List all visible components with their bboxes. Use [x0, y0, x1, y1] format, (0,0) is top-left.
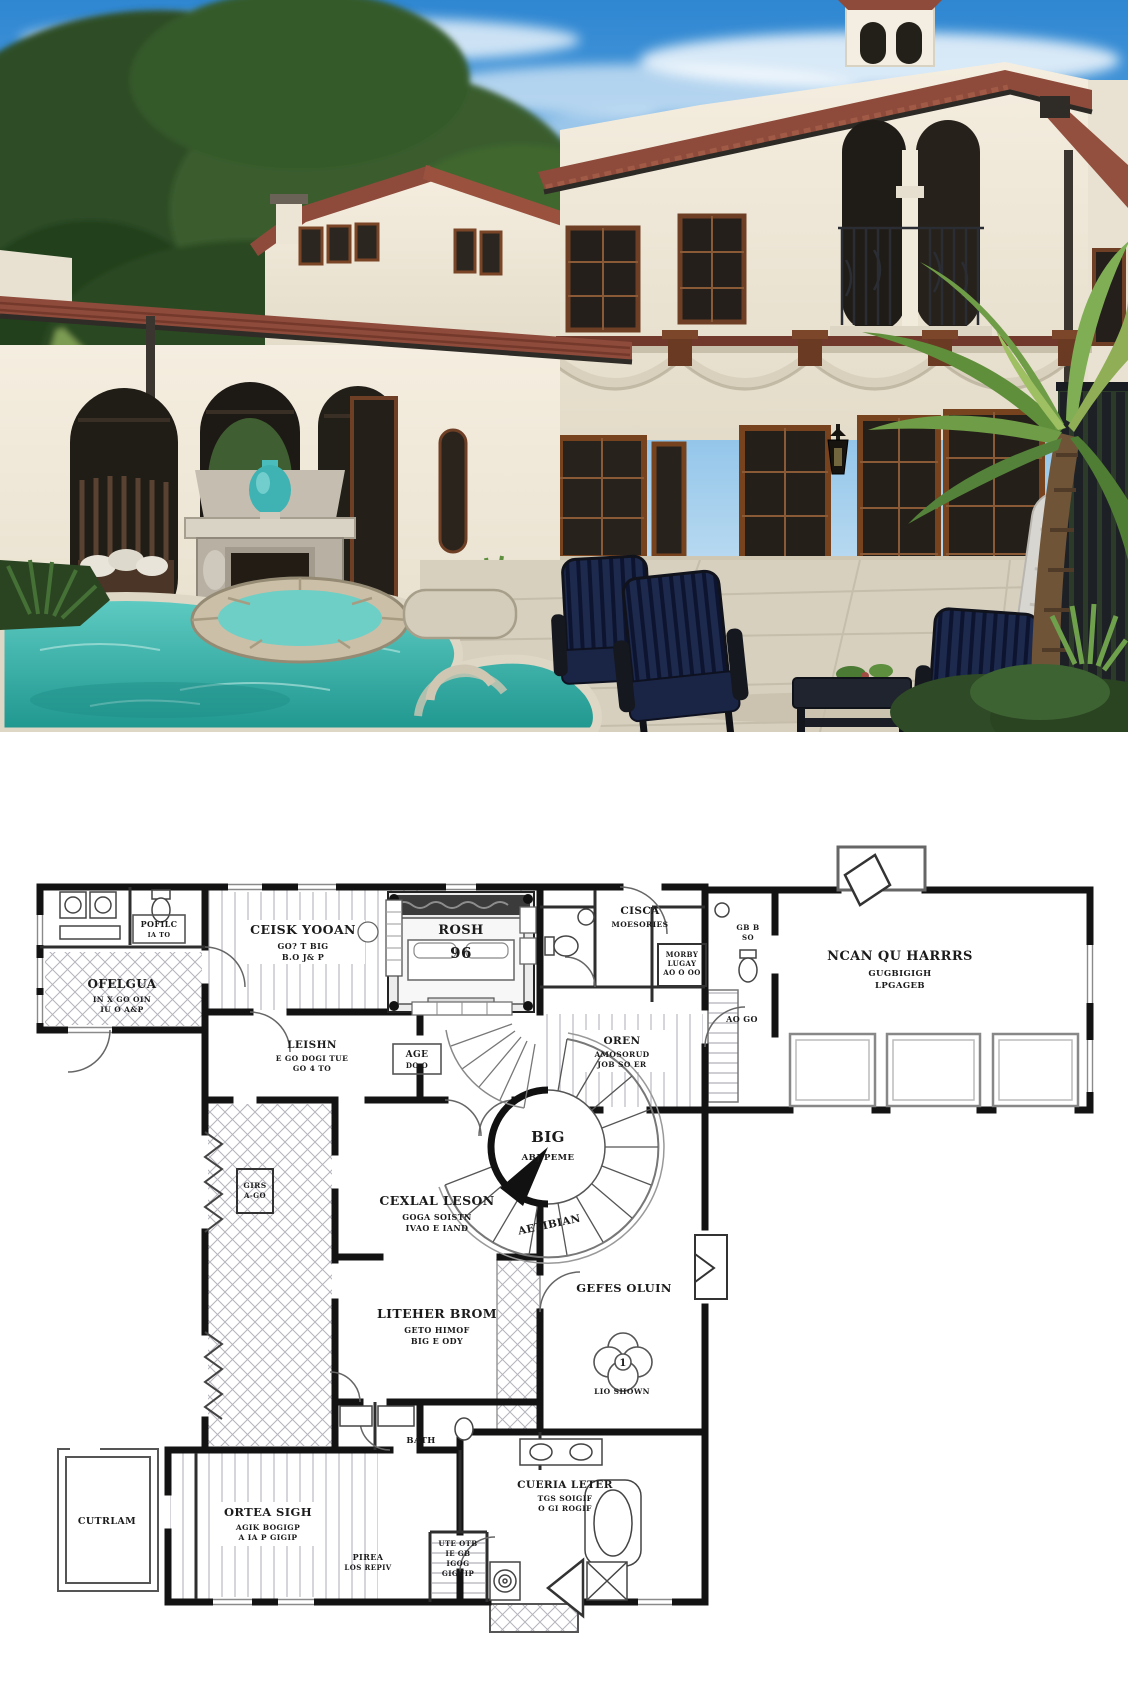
label-kitchen: LITEHER BROM	[377, 1306, 497, 1321]
house-photo	[0, 0, 1128, 732]
label-stair-curved: AETIBIAN	[516, 1213, 582, 1238]
label-ute: UTE OTB	[438, 1539, 477, 1548]
label-pirea-sub: LOS REPIV	[344, 1563, 391, 1572]
floor-plan-svg: POFILC IA TO OFELGUA IN X GO OIN IU O A&…	[0, 732, 1128, 1688]
label-central-sub2: IVAO E IAND	[406, 1223, 469, 1233]
label-ute-sub3: GIGUIP	[442, 1569, 475, 1578]
label-morby-sub1: LUGAY	[668, 959, 697, 968]
label-central-sub1: GOGA SOISTN	[402, 1212, 472, 1222]
label-morby: MORBY	[666, 950, 699, 959]
label-oren-sub1: AMOSORUD	[593, 1050, 649, 1059]
label-ceisk-sub1: GO? T BIG	[278, 941, 329, 951]
label-stair-big: BIG	[531, 1128, 565, 1146]
label-age-sub: DO O	[406, 1061, 428, 1070]
label-ceisk-sub2: B.O J& P	[282, 952, 324, 962]
label-age: AGE	[405, 1050, 429, 1060]
label-cueria-sub1: TGS SOIGIF	[538, 1494, 593, 1503]
floor-plan: POFILC IA TO OFELGUA IN X GO OIN IU O A&…	[0, 732, 1128, 1688]
label-ute-sub2: IGOG	[447, 1559, 470, 1568]
label-pofilc: POFILC	[141, 919, 178, 929]
balcony	[830, 120, 992, 350]
label-fountain-caption: LIO SHOWN	[594, 1387, 650, 1396]
label-central: CEXLAL LESON	[379, 1193, 494, 1208]
label-garage-sub2: LPGAGEB	[875, 981, 925, 991]
label-gbb-sub: SO	[742, 933, 754, 942]
label-ute-sub1: IE GB	[446, 1549, 471, 1558]
label-gbb: GB B	[736, 923, 759, 932]
narrow-window	[440, 430, 466, 552]
label-aogo: AO GO	[725, 1014, 758, 1024]
label-leishn-sub2: GO 4 TO	[293, 1064, 331, 1073]
tall-door	[352, 398, 396, 610]
label-pofilc-sub: IA TO	[148, 931, 171, 939]
label-oren-sub2: JOB SO ER	[596, 1060, 647, 1069]
label-rosh-num: 96	[450, 944, 472, 962]
label-cisca: CISCA	[620, 905, 660, 917]
label-office: ORTEA SIGH	[224, 1505, 312, 1519]
label-pirea: PIREA	[353, 1552, 384, 1562]
label-kitchen-sub1: GETO HIMOF	[404, 1325, 469, 1335]
label-office-sub2: A IA P GIGIP	[238, 1533, 298, 1542]
label-morby-sub2: AO O OO	[662, 968, 701, 977]
label-gefes: GEFES OLUIN	[576, 1281, 672, 1295]
label-stair-sub: ABJ PEME	[521, 1153, 575, 1163]
label-leishn: LEISHN	[287, 1039, 337, 1051]
label-ceisk: CEISK YOOAN	[250, 922, 356, 937]
cupola	[838, 0, 942, 66]
label-garage-sub1: GUGBIGIGH	[868, 969, 931, 979]
label-cutrlam: CUTRLAM	[78, 1516, 136, 1527]
label-girs: GIRS	[243, 1181, 266, 1190]
label-office-sub1: AGIK BOGIGP	[235, 1523, 300, 1532]
label-girs-sub: A-GO	[243, 1191, 266, 1200]
label-oren: OREN	[603, 1035, 640, 1047]
label-fountain-number: 1	[619, 1358, 626, 1369]
label-ofelgua-sub2: IU O A&P	[100, 1005, 143, 1014]
label-ofelgua-sub1: IN X GO OIN	[93, 995, 151, 1004]
label-ofelgua: OFELGUA	[87, 977, 156, 991]
label-garage: NCAN QU HARRRS	[827, 949, 973, 964]
label-bath: BATH	[406, 1436, 435, 1446]
label-cueria: CUERIA LETER	[517, 1479, 613, 1491]
house-photo-svg	[0, 0, 1128, 732]
label-cisca-sub: MOESORIES	[612, 920, 669, 929]
label-kitchen-sub2: BIG E ODY	[411, 1336, 463, 1346]
garage-vestibule	[838, 847, 925, 905]
label-cueria-sub2: O GI ROGIF	[538, 1504, 592, 1513]
label-leishn-sub1: E GO DOGI TUE	[276, 1054, 348, 1063]
label-rosh: ROSH	[438, 923, 483, 938]
listing-composite-image: POFILC IA TO OFELGUA IN X GO OIN IU O A&…	[0, 0, 1128, 1688]
